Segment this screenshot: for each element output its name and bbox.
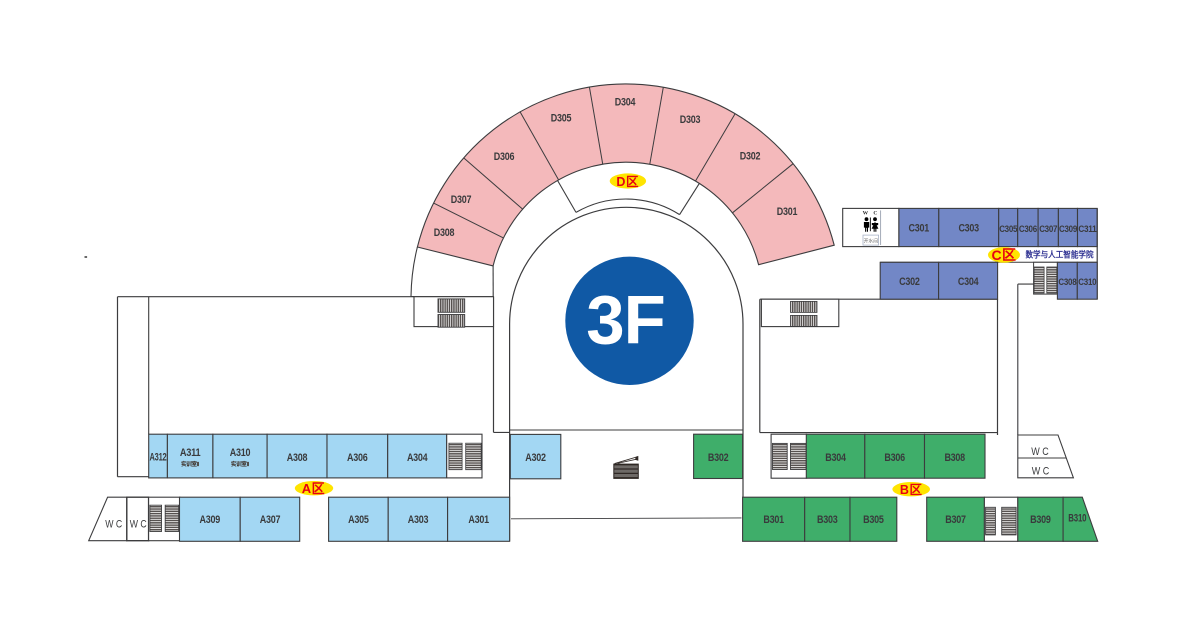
svg-text:实训室Ⅱ: 实训室Ⅱ [231, 460, 250, 468]
svg-text:数学与人工智能学院: 数学与人工智能学院 [1026, 250, 1095, 260]
svg-text:B308: B308 [944, 452, 965, 464]
svg-text:C302: C302 [899, 276, 920, 288]
svg-text:W C: W C [105, 519, 122, 531]
svg-text:C305: C305 [999, 224, 1017, 234]
svg-text:D303: D303 [680, 114, 701, 126]
svg-text:A区: A区 [302, 481, 325, 496]
svg-text:C310: C310 [1078, 277, 1096, 287]
svg-text:A304: A304 [407, 452, 428, 464]
svg-text:A309: A309 [200, 514, 221, 526]
svg-text:C307: C307 [1039, 224, 1057, 234]
svg-text:B301: B301 [763, 514, 784, 526]
svg-text:B区: B区 [900, 483, 923, 497]
svg-text:B302: B302 [708, 452, 729, 464]
svg-text:B304: B304 [825, 452, 846, 464]
svg-text:开水间: 开水间 [864, 238, 879, 245]
svg-text:B310: B310 [1068, 513, 1086, 525]
svg-text:D306: D306 [494, 151, 515, 163]
svg-text:C301: C301 [909, 223, 930, 235]
svg-text:B309: B309 [1030, 514, 1051, 526]
svg-text:W C: W C [130, 519, 147, 531]
svg-text:A302: A302 [525, 452, 546, 464]
svg-text:C311: C311 [1078, 224, 1096, 234]
svg-text:C306: C306 [1019, 224, 1037, 234]
svg-text:A301: A301 [468, 514, 489, 526]
svg-text:A307: A307 [260, 514, 281, 526]
svg-text:W C: W C [1032, 466, 1050, 478]
svg-text:D304: D304 [615, 97, 636, 109]
svg-text:W C: W C [1031, 446, 1049, 458]
svg-text:C309: C309 [1059, 224, 1077, 234]
svg-text:A303: A303 [408, 514, 429, 526]
svg-text:A305: A305 [348, 514, 369, 526]
svg-text:B307: B307 [945, 514, 966, 526]
svg-text:D302: D302 [740, 151, 761, 163]
svg-text:A311: A311 [180, 447, 201, 459]
svg-text:C304: C304 [958, 276, 979, 288]
svg-text:A310: A310 [230, 447, 251, 459]
svg-text:W C: W C [863, 211, 880, 217]
svg-text:C区: C区 [991, 247, 1016, 263]
svg-text:D307: D307 [451, 194, 472, 206]
svg-text:C308: C308 [1058, 277, 1076, 287]
svg-text:B305: B305 [863, 514, 884, 526]
svg-text:A312: A312 [150, 452, 167, 464]
svg-text:B306: B306 [884, 452, 905, 464]
svg-text:实训室Ⅱ: 实训室Ⅱ [181, 460, 200, 468]
svg-text:A308: A308 [287, 452, 308, 464]
svg-text:D308: D308 [434, 227, 455, 239]
svg-text:D301: D301 [777, 206, 798, 218]
svg-text:B303: B303 [817, 514, 838, 526]
svg-text:A306: A306 [347, 452, 368, 464]
svg-text:C303: C303 [958, 223, 979, 235]
svg-text:3F: 3F [586, 282, 665, 359]
svg-text:D305: D305 [551, 113, 572, 125]
svg-text:D区: D区 [616, 175, 639, 189]
